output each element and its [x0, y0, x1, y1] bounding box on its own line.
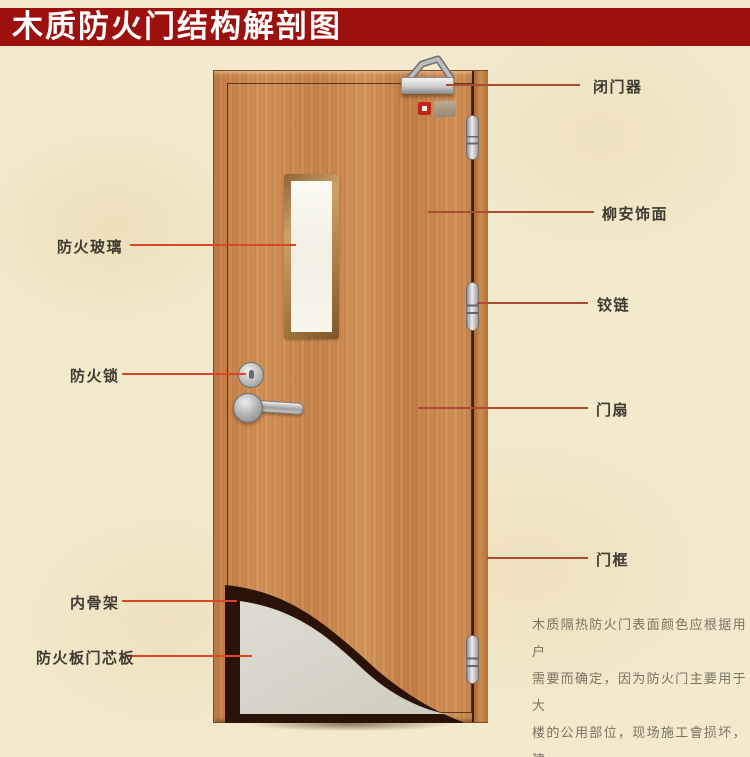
product-description: 木质隔热防火门表面颜色应根据用户 需要而确定，因为防火门主要用于大 楼的公用部位…	[532, 612, 746, 757]
fire-lock-cylinder	[238, 362, 264, 388]
leader-line-inner-skeleton	[122, 600, 237, 602]
certification-plate	[434, 101, 457, 118]
badge-dot	[422, 106, 427, 111]
door-handle-base	[233, 393, 263, 423]
door-frame-strip	[474, 71, 488, 722]
leader-line-door-closer	[446, 84, 580, 86]
title-banner: 木质防火门结构解剖图	[0, 8, 750, 46]
leader-line-veneer	[428, 211, 594, 213]
glass-bevel-frame	[284, 174, 339, 339]
leader-line-core-board	[128, 655, 252, 657]
leader-line-door-leaf	[418, 407, 588, 409]
leader-line-door-frame	[487, 557, 588, 559]
label-inner-skeleton: 内骨架	[70, 592, 120, 613]
core-board-shape	[240, 601, 446, 714]
label-door-closer: 闭门器	[593, 76, 643, 97]
label-door-frame: 门框	[596, 549, 629, 570]
fire-rating-badge	[418, 102, 431, 115]
page-title: 木质防火门结构解剖图	[0, 8, 342, 46]
cutaway-section	[215, 581, 473, 723]
label-door-leaf: 门扇	[596, 399, 629, 420]
keyhole-icon	[249, 370, 254, 379]
leader-line-fire-lock	[122, 373, 246, 375]
fire-glass-pane	[291, 181, 332, 332]
label-veneer: 柳安饰面	[602, 203, 668, 224]
hinge-bottom	[466, 635, 479, 684]
infographic-page: 木质防火门结构解剖图	[0, 0, 750, 757]
hinge-top	[466, 115, 479, 160]
label-hinge: 铰链	[597, 294, 630, 315]
label-core-board: 防火板门芯板	[36, 647, 135, 668]
label-fire-lock: 防火锁	[70, 365, 120, 386]
label-fire-glass: 防火玻璃	[57, 236, 123, 257]
leader-line-hinge	[477, 302, 588, 304]
door-closer-arm	[397, 52, 459, 79]
leader-line-fire-glass	[130, 244, 296, 246]
hinge-middle	[466, 282, 479, 331]
fire-door-illustration	[213, 70, 488, 723]
